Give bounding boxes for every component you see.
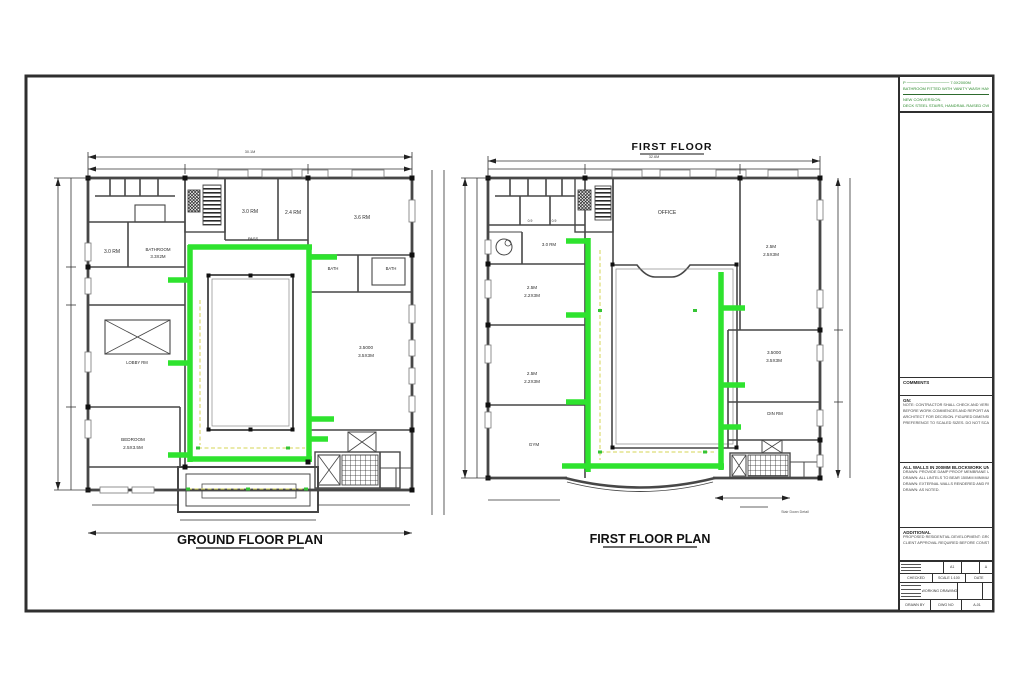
note-line: DRAWN: AS NOTED. [903, 488, 989, 494]
table-cell [958, 583, 983, 599]
table-row: DRAWN BY DWG NO A-01 [900, 600, 992, 610]
note-line: BEFORE WORK COMMENCES AND REPORT ANY DIS… [903, 409, 989, 415]
table-cell: Δ [980, 562, 992, 573]
table-row: A1 Δ [900, 562, 992, 574]
first-windows [485, 170, 823, 467]
general-notes-section: GN: NOTE: CONTRACTOR SHALL CHECK AND VER… [900, 395, 992, 462]
room-label: BATHROOM [145, 247, 170, 252]
room-label: 2.2X3M [524, 379, 540, 384]
first-floor-plan: FIRST FLOOR [461, 141, 850, 547]
room-label: 2.5M [527, 371, 537, 376]
room-label: 3.5X3M [766, 358, 782, 363]
table-cell: CHECKED [900, 574, 933, 583]
table-cell [983, 583, 992, 599]
room-label: 2.5X3.5M [123, 445, 143, 450]
revision-lines [900, 583, 922, 599]
room-label: 3.5000 [767, 350, 781, 355]
room-label: DIN RM [767, 411, 783, 416]
note-line: DRAWN: PROVIDE DAMP PROOF MEMBRANE UNDER… [903, 470, 989, 476]
comments-header: COMMENTS [903, 380, 989, 385]
table-cell: A-01 [962, 600, 992, 610]
room-label: 3.0 RM [242, 209, 258, 215]
door-width-mark: 0.9 [528, 219, 533, 223]
green-note: BATHROOM FITTED WITH VANITY WASH HAND BA… [903, 86, 989, 92]
table-cell: A1 [944, 562, 962, 573]
note-line: CLIENT APPROVAL REQUIRED BEFORE CONSTRUC… [903, 541, 989, 547]
room-label: BEDROOM [121, 437, 145, 442]
room-label: 3.5X3M [358, 353, 374, 358]
green-note: DECK STEEL STAIRS, HANDRAIL RAISED OVER … [903, 103, 989, 109]
door-width-mark: 0.9 [552, 219, 557, 223]
room-label: 2.4 RM [285, 210, 301, 216]
note-line: DRAWN: ALL LINTELS TO BEAR 150MM MINIMUM… [903, 476, 989, 482]
table-row: CHECKED SCALE 1:100 DATE [900, 574, 992, 584]
note-line: NOTE: CONTRACTOR SHALL CHECK AND VERIFY … [903, 403, 989, 409]
note-line: ARCHITECT FOR DECISION. FIGURED DIMENSIO… [903, 415, 989, 421]
room-label: 2.5M [527, 285, 537, 290]
room-label: LOBBY RM [126, 360, 148, 365]
first-setout-markers [598, 309, 707, 454]
revision-lines [900, 562, 922, 573]
room-label: 3.5000 [359, 345, 373, 350]
room-label: 3.0 RM [104, 249, 120, 255]
room-label: 3.3X2M [150, 254, 165, 259]
stair-detail-note: Stair Down Detail [781, 510, 809, 514]
title-block-table: A1 Δ CHECKED SCALE 1:100 DATE WORKING DR… [900, 560, 992, 610]
table-cell [962, 562, 980, 573]
note-line: DRAWN: EXTERNAL WALLS RENDERED AND PAINT… [903, 482, 989, 488]
first-columns [486, 176, 823, 481]
divider [903, 94, 989, 95]
note-line: PROPOSED RESIDENTIAL DEVELOPMENT: GROUND… [903, 535, 989, 541]
first-dashed-setout-lines [600, 250, 714, 460]
ground-top-dimension-text: 30.1M [245, 150, 256, 154]
title-block: P ─────────────── 7.0X2000M BATHROOM FIT… [898, 76, 993, 611]
table-cell: DRAWN BY [900, 600, 931, 610]
room-label: 2.5M [766, 244, 776, 249]
table-cell: DWG NO [931, 600, 962, 610]
first-top-dimension-text: 32.6M [649, 155, 660, 159]
table-cell: SCALE 1:100 [933, 574, 966, 583]
room-label: BATH [386, 266, 397, 271]
title-block-spacer [900, 113, 992, 377]
table-cell: DATE [966, 574, 992, 583]
floor-plans-canvas: 30.1M 3.0 RM 2.4 RM 3.6 RM PASS 3.0 RM B… [0, 0, 1024, 683]
spec-notes-section: ALL WALLS IN 200MM BLOCKWORK UNLESS NOTE… [900, 462, 992, 527]
additional-section: ADDITIONAL PROPOSED RESIDENTIAL DEVELOPM… [900, 527, 992, 560]
ground-floor-plan: 30.1M 3.0 RM 2.4 RM 3.6 RM PASS 3.0 RM B… [54, 150, 444, 548]
room-label: PASS [248, 236, 259, 241]
table-cell [922, 562, 944, 573]
room-label: BATH [328, 266, 339, 271]
first-highlight-walls [562, 238, 745, 472]
room-label: 2.2X3M [524, 293, 540, 298]
sheet-border [26, 76, 993, 611]
drawing-sheet: 30.1M 3.0 RM 2.4 RM 3.6 RM PASS 3.0 RM B… [0, 0, 1024, 683]
room-label: OFFICE [658, 210, 677, 216]
first-floor-plan-title: FIRST FLOOR PLAN [590, 532, 711, 546]
note-line: PREFERENCE TO SCALED SIZES. DO NOT SCALE… [903, 421, 989, 427]
table-row: WORKING DRAWING [900, 583, 992, 600]
room-label: 2.5X3M [763, 252, 779, 257]
first-floor-heading: FIRST FLOOR [632, 141, 713, 153]
room-label: 3.6 RM [354, 215, 370, 221]
title-block-green-notes: P ─────────────── 7.0X2000M BATHROOM FIT… [900, 77, 992, 113]
room-label: GYM [529, 442, 540, 447]
drawing-title-cell: WORKING DRAWING [922, 583, 958, 599]
room-label: 3.0 RM [542, 242, 556, 247]
comments-section: COMMENTS [900, 377, 992, 395]
ground-floor-plan-title: GROUND FLOOR PLAN [177, 532, 323, 547]
